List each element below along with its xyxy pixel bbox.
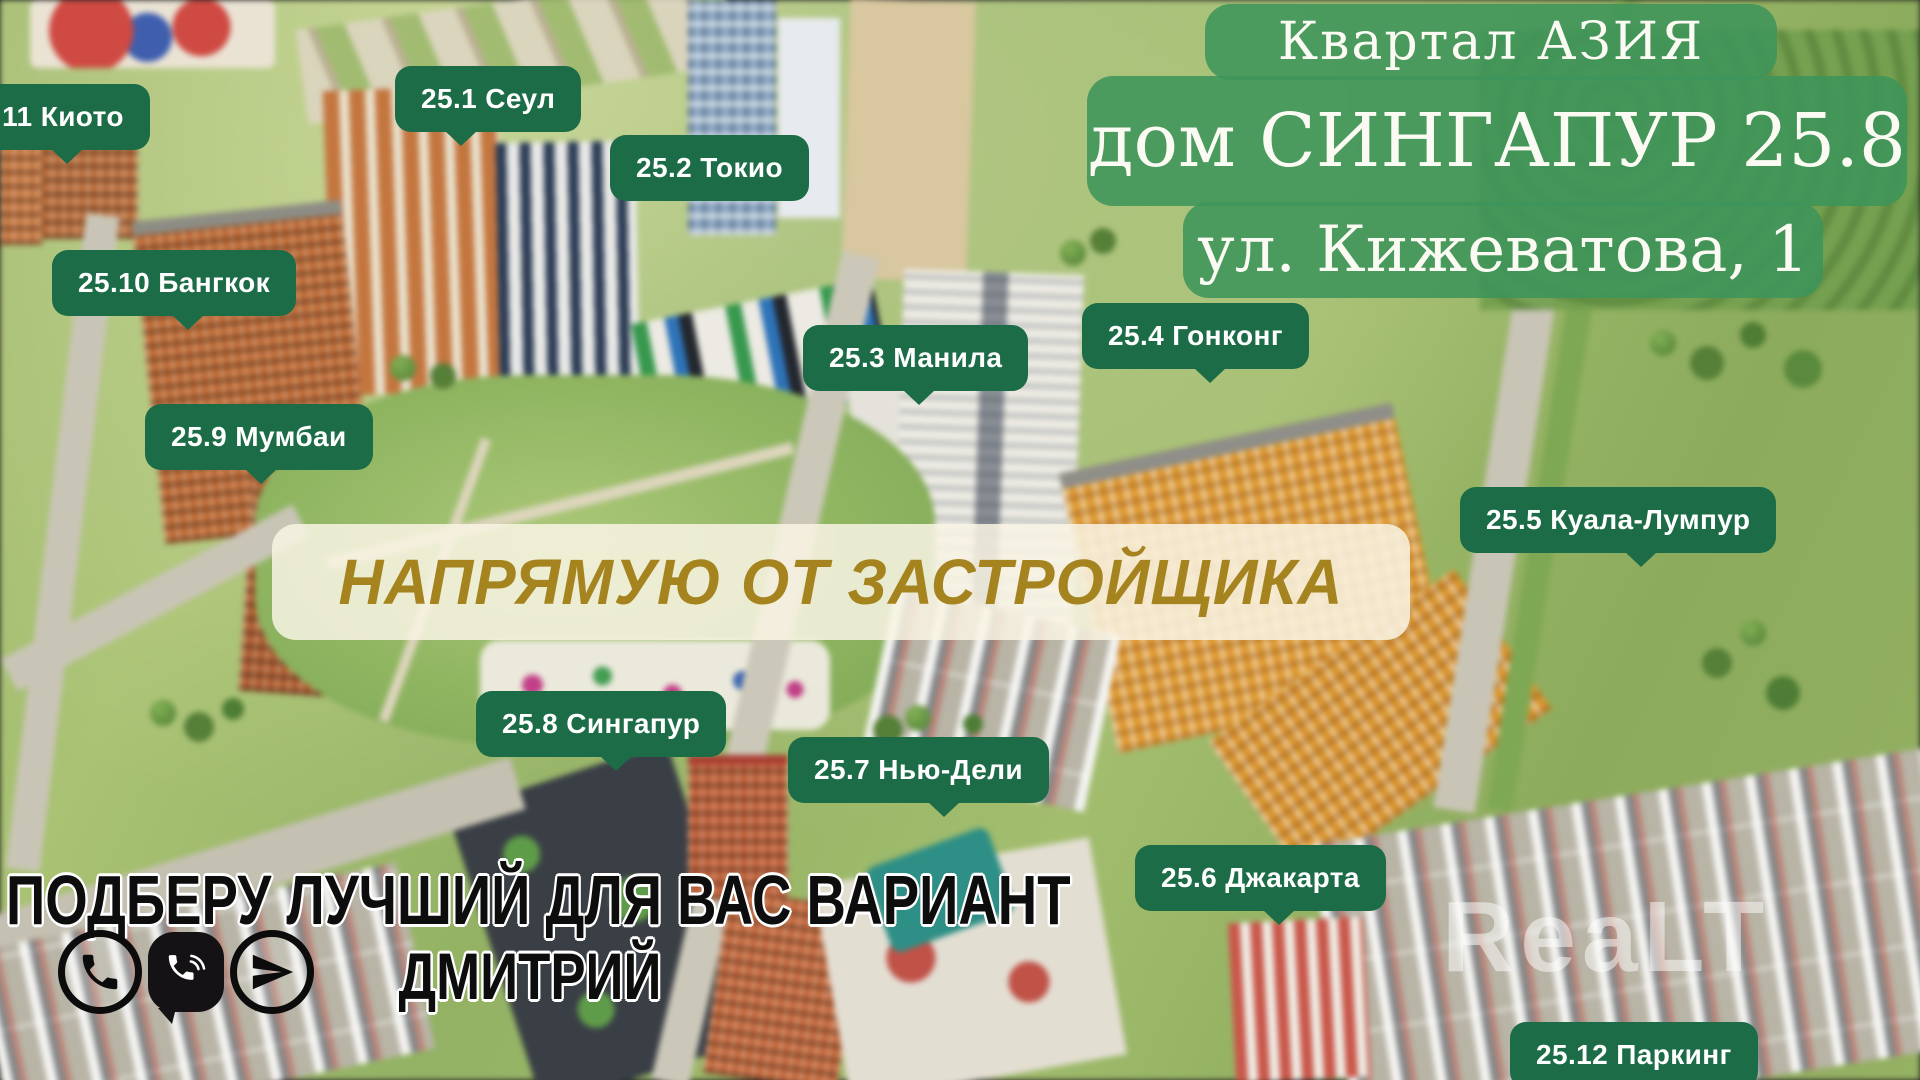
map-label-text: 25.5 Куала-Лумпур (1486, 504, 1750, 536)
map-label-pointer (928, 802, 960, 817)
map-label-mumbai: 25.9 Мумбаи (145, 404, 373, 470)
map-label-manila: 25.3 Манила (803, 325, 1028, 391)
map-label-hongkong: 25.4 Гонконг (1082, 303, 1309, 369)
poster-image: Квартал АЗИЯ дом СИНГАПУР 25.8 ул. Кижев… (0, 0, 1920, 1080)
map-label-text: 25.2 Токио (636, 152, 783, 184)
map-label-text: 25.1 Сеул (421, 83, 555, 115)
map-label-pointer (445, 131, 477, 146)
map-label-pointer (245, 469, 277, 484)
map-label-tokyo: 25.2 Токио (610, 135, 809, 201)
map-label-singapore: 25.8 Сингапур (476, 691, 726, 757)
map-label-text: 25.12 Паркинг (1536, 1039, 1732, 1071)
map-label-pointer (1263, 910, 1295, 925)
map-label-bangkok: 25.10 Бангкок (52, 250, 296, 316)
map-label-text: 25.6 Джакарта (1161, 862, 1360, 894)
map-label-text: 25.4 Гонконг (1108, 320, 1283, 352)
realt-watermark: ReaLT (1442, 880, 1770, 995)
map-label-new-delhi: 25.7 Нью-Дели (788, 737, 1049, 803)
map-label-kuala-lumpur: 25.5 Куала-Лумпур (1460, 487, 1776, 553)
map-label-pointer (600, 756, 632, 771)
map-label-jakarta: 25.6 Джакарта (1135, 845, 1386, 911)
map-label-parking: 25.12 Паркинг (1510, 1022, 1758, 1080)
map-label-pointer (1194, 368, 1226, 383)
map-label-text: 25.9 Мумбаи (171, 421, 347, 453)
map-label-pointer (1625, 552, 1657, 567)
map-label-text: 25.7 Нью-Дели (814, 754, 1023, 786)
map-label-text: 25.8 Сингапур (502, 708, 700, 740)
map-label-pointer (172, 315, 204, 330)
map-label-text: 25.10 Бангкок (78, 267, 270, 299)
map-label-text: 25.3 Манила (829, 342, 1002, 374)
map-label-seoul: 25.1 Сеул (395, 66, 581, 132)
map-label-text: 25.11 Киото (0, 101, 124, 133)
map-label-pointer (51, 149, 83, 164)
map-label-kyoto: 25.11 Киото (0, 84, 150, 150)
map-label-pointer (903, 390, 935, 405)
